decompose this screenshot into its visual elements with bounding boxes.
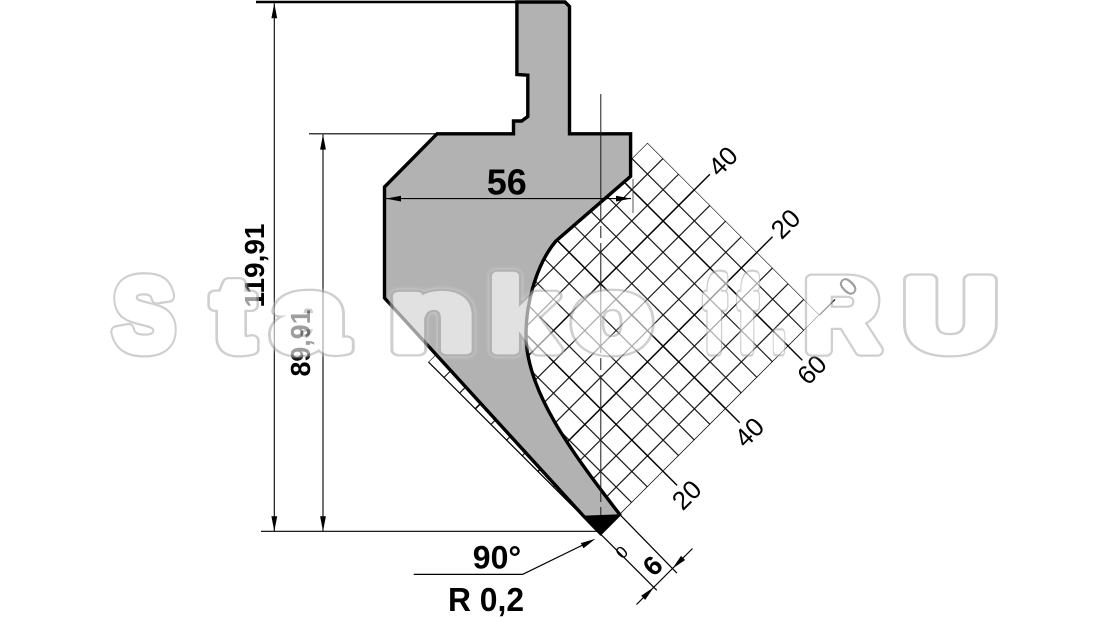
svg-text:U: U <box>904 258 998 372</box>
svg-text:f: f <box>739 258 758 372</box>
svg-text:90°: 90° <box>473 539 521 575</box>
svg-text:S: S <box>114 258 175 372</box>
svg-text:o: o <box>573 258 652 372</box>
svg-text:56: 56 <box>487 161 527 202</box>
svg-text:k: k <box>489 258 557 372</box>
svg-text:f: f <box>705 258 726 372</box>
svg-text:n: n <box>390 258 475 372</box>
svg-text:R: R <box>805 258 880 372</box>
svg-text:R 0,2: R 0,2 <box>448 581 524 618</box>
svg-text:t: t <box>214 258 254 372</box>
svg-text:.: . <box>773 258 786 372</box>
svg-text:a: a <box>273 258 348 372</box>
